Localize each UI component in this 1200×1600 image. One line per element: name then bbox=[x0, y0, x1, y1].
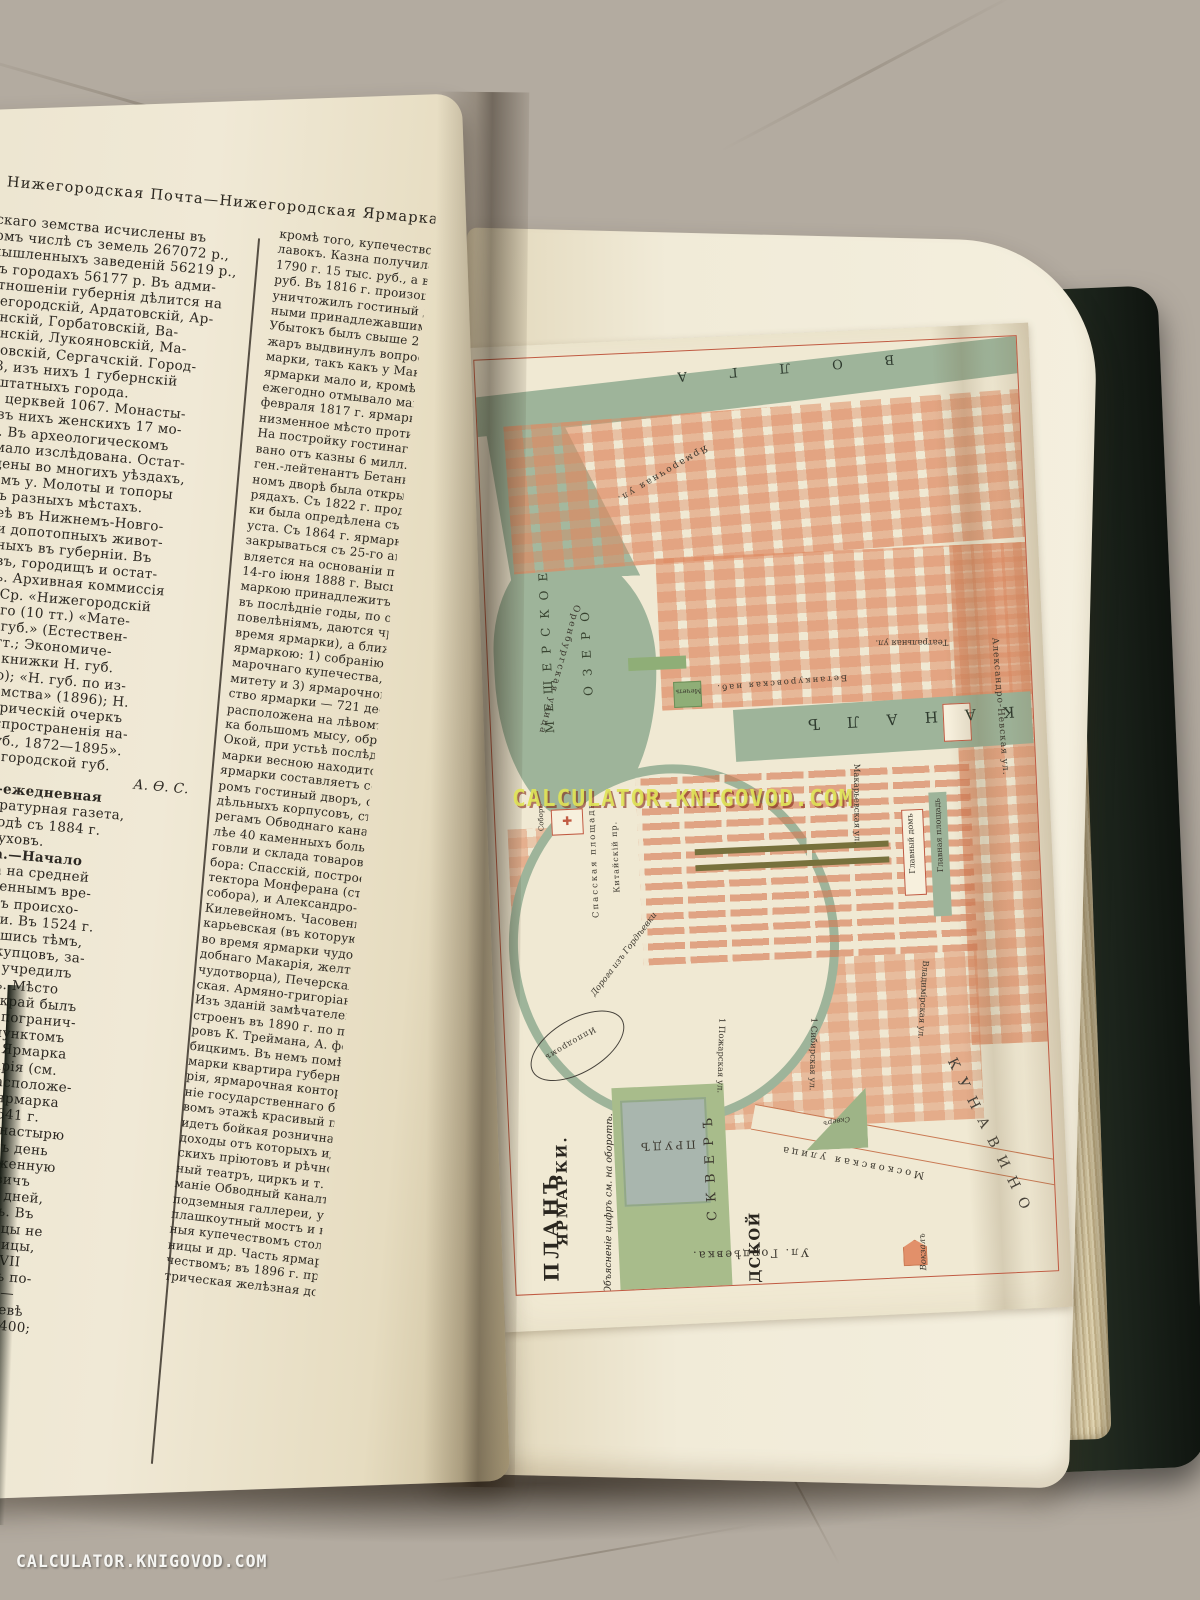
station-label: Вокзалъ bbox=[918, 1233, 930, 1271]
map-title-line2: НИЖЕГОРОДСКОЙ bbox=[746, 1211, 765, 1295]
map-plate: ВОЛГА МЕЩЕРСКОЕ ОЗЕРО КАНАЛЪ ✚ Со bbox=[461, 323, 1073, 1333]
pond-label: ПРУДЪ bbox=[638, 1138, 696, 1154]
cathedral-building: ✚ bbox=[551, 808, 584, 835]
map-note: Объясненіе цифръ см. на оборотѣ. bbox=[603, 1113, 615, 1294]
street-pozhar-label: 1 Пожарская ул. bbox=[715, 1018, 727, 1094]
street-sibir-label: 1 Сибирская ул. bbox=[807, 1018, 819, 1091]
green-strip bbox=[628, 655, 687, 671]
right-page: ВОЛГА МЕЩЕРСКОЕ ОЗЕРО КАНАЛЪ ✚ Со bbox=[437, 227, 1099, 1488]
street-theatre-label: Театральная ул. bbox=[875, 637, 948, 648]
mosque-label: Мечеть bbox=[675, 687, 701, 696]
map-title-line3: ЯРМАРКИ. bbox=[553, 1135, 571, 1246]
watermark-center: CALCULATOR.KNIGOVOD.COM bbox=[512, 786, 854, 812]
left-page-content: Нижегородская Почта—Нижегородская Ярмарк… bbox=[0, 169, 436, 1536]
watermark-bottom-left: CALCULATOR.KNIGOVOD.COM bbox=[16, 1552, 267, 1571]
